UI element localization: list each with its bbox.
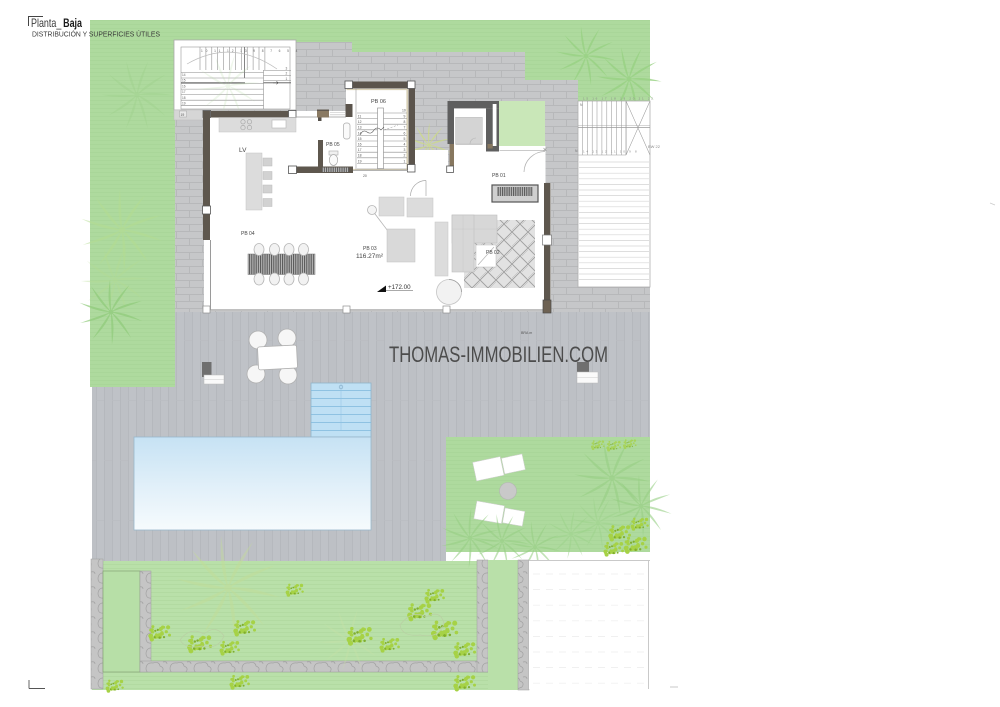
- svg-text:PB 04: PB 04: [241, 231, 255, 237]
- svg-text:10 11 12 13 9 8 7 6 5 4: 10 11 12 13 9 8 7 6 5 4: [201, 49, 300, 53]
- svg-text:19: 19: [358, 159, 362, 163]
- svg-text:Planta_ Baja: Planta_ Baja: [31, 16, 82, 30]
- svg-text:14: 14: [358, 131, 362, 135]
- svg-text:PB 06: PB 06: [371, 99, 386, 105]
- svg-text:17: 17: [358, 148, 362, 152]
- svg-text:19: 19: [181, 113, 185, 117]
- svg-text:BRA m: BRA m: [521, 331, 532, 335]
- svg-text:THOMAS-IMMOBILIEN.COM: THOMAS-IMMOBILIEN.COM: [389, 342, 608, 367]
- svg-text:6: 6: [404, 131, 406, 135]
- svg-text:14 13 12 11 10 9 8: 14 13 12 11 10 9 8: [583, 150, 638, 154]
- svg-text:PB 05: PB 05: [326, 142, 340, 148]
- svg-text:PB 01: PB 01: [492, 173, 506, 179]
- svg-text:2: 2: [404, 154, 406, 158]
- svg-text:18: 18: [358, 154, 362, 158]
- svg-text:+172.00: +172.00: [388, 284, 411, 291]
- svg-text:PB 03: PB 03: [363, 246, 377, 252]
- svg-text:10: 10: [402, 109, 406, 113]
- svg-text:7: 7: [404, 126, 406, 130]
- svg-text:15: 15: [182, 79, 186, 83]
- svg-text:DISTRIBUCIÓN Y SUPERFICIES ÚTI: DISTRIBUCIÓN Y SUPERFICIES ÚTILES: [32, 30, 160, 39]
- svg-text:20: 20: [363, 174, 367, 178]
- svg-text:5: 5: [404, 137, 406, 141]
- svg-text:13: 13: [358, 126, 362, 130]
- svg-text:1: 1: [404, 159, 406, 163]
- svg-text:2: 2: [286, 72, 288, 76]
- svg-text:16: 16: [182, 84, 186, 88]
- svg-text:11: 11: [358, 115, 362, 119]
- svg-text:1: 1: [286, 77, 288, 81]
- svg-text:17: 17: [182, 90, 186, 94]
- svg-text:8: 8: [404, 120, 406, 124]
- svg-text:15: 15: [358, 137, 362, 141]
- svg-text:9: 9: [404, 115, 406, 119]
- svg-text:12: 12: [358, 120, 362, 124]
- svg-text:3: 3: [404, 148, 406, 152]
- svg-text:18: 18: [182, 96, 186, 100]
- svg-text:15 16 17 18 19 20 21 22: 15 16 17 18 19 20 21 22: [583, 97, 655, 101]
- svg-text:116.27m²: 116.27m²: [356, 253, 384, 260]
- svg-text:16: 16: [358, 143, 362, 147]
- svg-text:BW 22: BW 22: [648, 144, 661, 149]
- svg-text:PB 02: PB 02: [486, 250, 500, 256]
- svg-text:19: 19: [182, 102, 186, 106]
- svg-text:14: 14: [182, 73, 186, 77]
- svg-text:4: 4: [404, 143, 406, 147]
- svg-text:3: 3: [286, 67, 288, 71]
